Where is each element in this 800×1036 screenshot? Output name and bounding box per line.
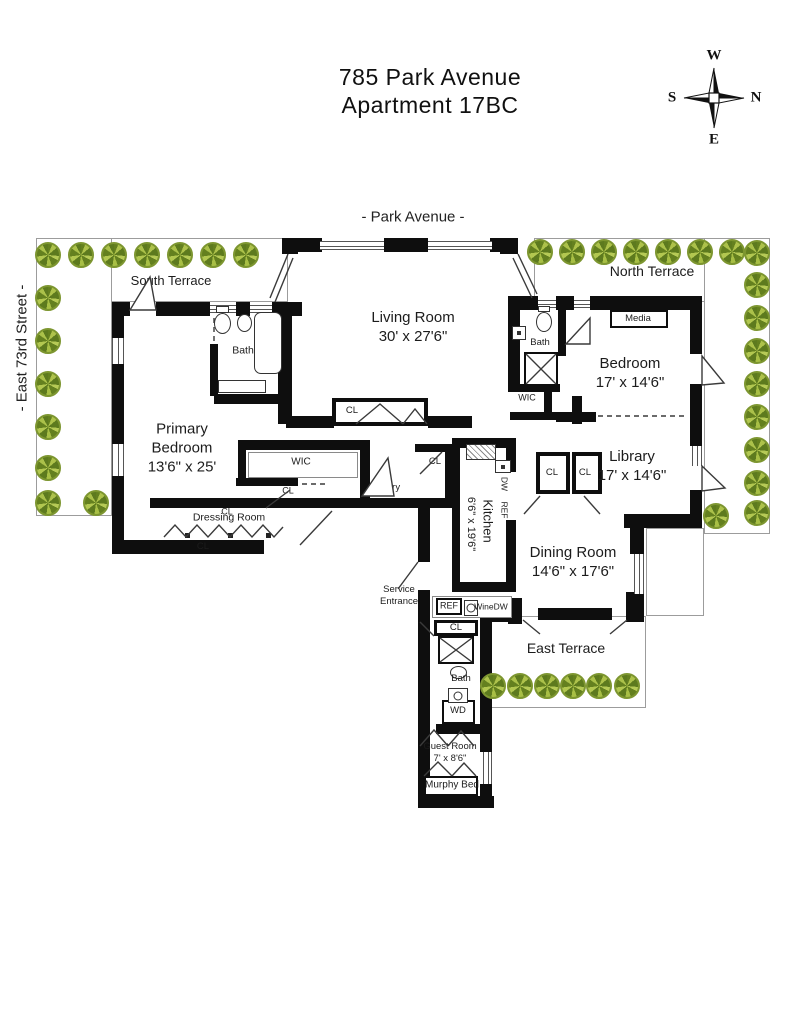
tree-icon — [527, 239, 553, 265]
label-cl-dressing: CL — [197, 541, 209, 553]
wall — [436, 724, 492, 734]
tree-icon — [744, 272, 770, 298]
toilet — [536, 312, 552, 332]
shower-bedroom — [524, 352, 558, 386]
tree-icon — [744, 338, 770, 364]
wall — [452, 582, 516, 592]
tree-icon — [35, 371, 61, 397]
label-cl-entry: CL — [429, 456, 441, 468]
sink — [448, 688, 468, 703]
terrace-outline — [646, 528, 704, 616]
tree-icon — [35, 414, 61, 440]
label-east-terrace: East Terrace — [527, 640, 605, 658]
label-bath-guest: Bath — [451, 673, 471, 685]
label-living-room: Living Room30' x 27'6" — [371, 308, 454, 346]
label-ref: REF — [440, 600, 458, 611]
tree-icon — [623, 239, 649, 265]
wall — [112, 540, 264, 554]
tree-icon — [744, 470, 770, 496]
wall — [428, 416, 472, 428]
tree-icon — [559, 239, 585, 265]
wall — [238, 440, 370, 450]
tree-icon — [35, 490, 61, 516]
label-cl-library-2: CL — [579, 467, 591, 479]
rod-dot — [185, 533, 190, 538]
bench — [218, 380, 266, 393]
tree-icon — [744, 305, 770, 331]
label-dining-room: Dining Room14'6" x 17'6" — [530, 543, 617, 581]
sink — [512, 326, 526, 340]
label-primary-bedroom: PrimaryBedroom13'6" x 25' — [148, 419, 217, 476]
label-cl-library-1: CL — [546, 467, 558, 479]
wall — [556, 412, 596, 422]
wall — [590, 296, 702, 310]
tree-icon — [167, 242, 193, 268]
label-bath-primary: Bath — [232, 344, 254, 357]
label-south-terrace: South Terrace — [131, 273, 212, 290]
wall — [558, 310, 566, 356]
wall — [508, 296, 520, 392]
label-wic-primary: WIC — [291, 457, 310, 470]
label-kitchen-dims: 6'6" x 19'6" — [463, 497, 477, 551]
tree-icon — [744, 437, 770, 463]
label-kitchen: Kitchen — [479, 499, 496, 542]
tree-icon — [134, 242, 160, 268]
label-ref-kitchen: REF — [499, 502, 510, 519]
wall — [150, 498, 336, 508]
label-cl-hall: CL — [450, 622, 462, 634]
label-library: Library17' x 14'6" — [598, 447, 667, 485]
wall — [286, 416, 334, 428]
wall — [334, 498, 460, 508]
tree-icon — [744, 500, 770, 526]
label-wic-bedroom: WIC — [518, 392, 536, 403]
label-bedroom: Bedroom17' x 14'6" — [596, 354, 665, 392]
label-dw: DW — [499, 477, 510, 491]
wall — [384, 238, 428, 252]
toilet — [214, 313, 231, 334]
label-entry: Entry — [378, 482, 400, 494]
window — [112, 444, 124, 476]
sink — [237, 314, 252, 332]
wall — [544, 386, 552, 416]
tree-icon — [35, 242, 61, 268]
rod-dot — [228, 533, 233, 538]
wall — [690, 384, 702, 446]
window — [428, 241, 492, 250]
wall — [210, 344, 218, 396]
wall — [415, 444, 451, 452]
label-winedw: WineDW — [474, 602, 508, 613]
tree-icon — [586, 673, 612, 699]
tree-icon — [200, 242, 226, 268]
window — [634, 554, 644, 594]
window — [692, 446, 702, 466]
wall — [630, 528, 644, 554]
tree-icon — [83, 490, 109, 516]
wall — [112, 364, 124, 444]
tree-icon — [744, 240, 770, 266]
floor-plan: South TerraceNorth TerraceEast TerraceLi… — [0, 0, 800, 1036]
tree-icon — [703, 503, 729, 529]
wall — [282, 238, 298, 254]
shower-guest — [438, 636, 474, 664]
tree-icon — [35, 285, 61, 311]
window — [483, 752, 492, 784]
wall — [506, 520, 516, 590]
wall — [556, 296, 574, 310]
label-cl-dressing-top: CL — [221, 506, 233, 517]
window — [112, 338, 124, 364]
label-media: Media — [625, 313, 651, 325]
tree-icon — [35, 328, 61, 354]
tree-icon — [719, 239, 745, 265]
toilet-tank — [216, 306, 229, 313]
rod-dot — [266, 533, 271, 538]
wall — [480, 784, 492, 808]
wall — [500, 238, 518, 254]
tree-icon — [480, 673, 506, 699]
wall — [418, 498, 430, 562]
tree-icon — [744, 371, 770, 397]
label-wd: WD — [450, 705, 466, 717]
label-cl-living: CL — [346, 405, 358, 417]
wall — [690, 296, 702, 354]
stove — [466, 444, 496, 460]
wall — [626, 592, 644, 622]
label-bath-bedroom: Bath — [530, 337, 550, 349]
tree-icon — [655, 239, 681, 265]
tree-icon — [534, 673, 560, 699]
tree-icon — [101, 242, 127, 268]
bathtub — [254, 312, 282, 374]
tree-icon — [35, 455, 61, 481]
wall — [112, 302, 130, 316]
wall — [538, 608, 612, 620]
tree-icon — [233, 242, 259, 268]
label-north-terrace: North Terrace — [610, 263, 695, 281]
tree-icon — [591, 239, 617, 265]
wall — [452, 442, 460, 590]
wall — [156, 302, 210, 316]
label-murphy-bed: Murphy Bed — [425, 780, 479, 793]
kitchen-sink — [495, 460, 511, 473]
window — [574, 300, 590, 308]
tree-icon — [507, 673, 533, 699]
tree-icon — [744, 404, 770, 430]
wall — [112, 316, 124, 338]
label-service-entrance: ServiceEntrance — [380, 584, 418, 608]
window — [320, 241, 384, 250]
label-cl-wic: CL — [282, 485, 294, 496]
tree-icon — [68, 242, 94, 268]
wall — [418, 590, 430, 802]
tree-icon — [560, 673, 586, 699]
tree-icon — [614, 673, 640, 699]
wall — [112, 476, 124, 544]
label-guest-room: Guest Room7' x 8'6" — [423, 741, 476, 765]
tree-icon — [687, 239, 713, 265]
wall — [624, 514, 702, 528]
